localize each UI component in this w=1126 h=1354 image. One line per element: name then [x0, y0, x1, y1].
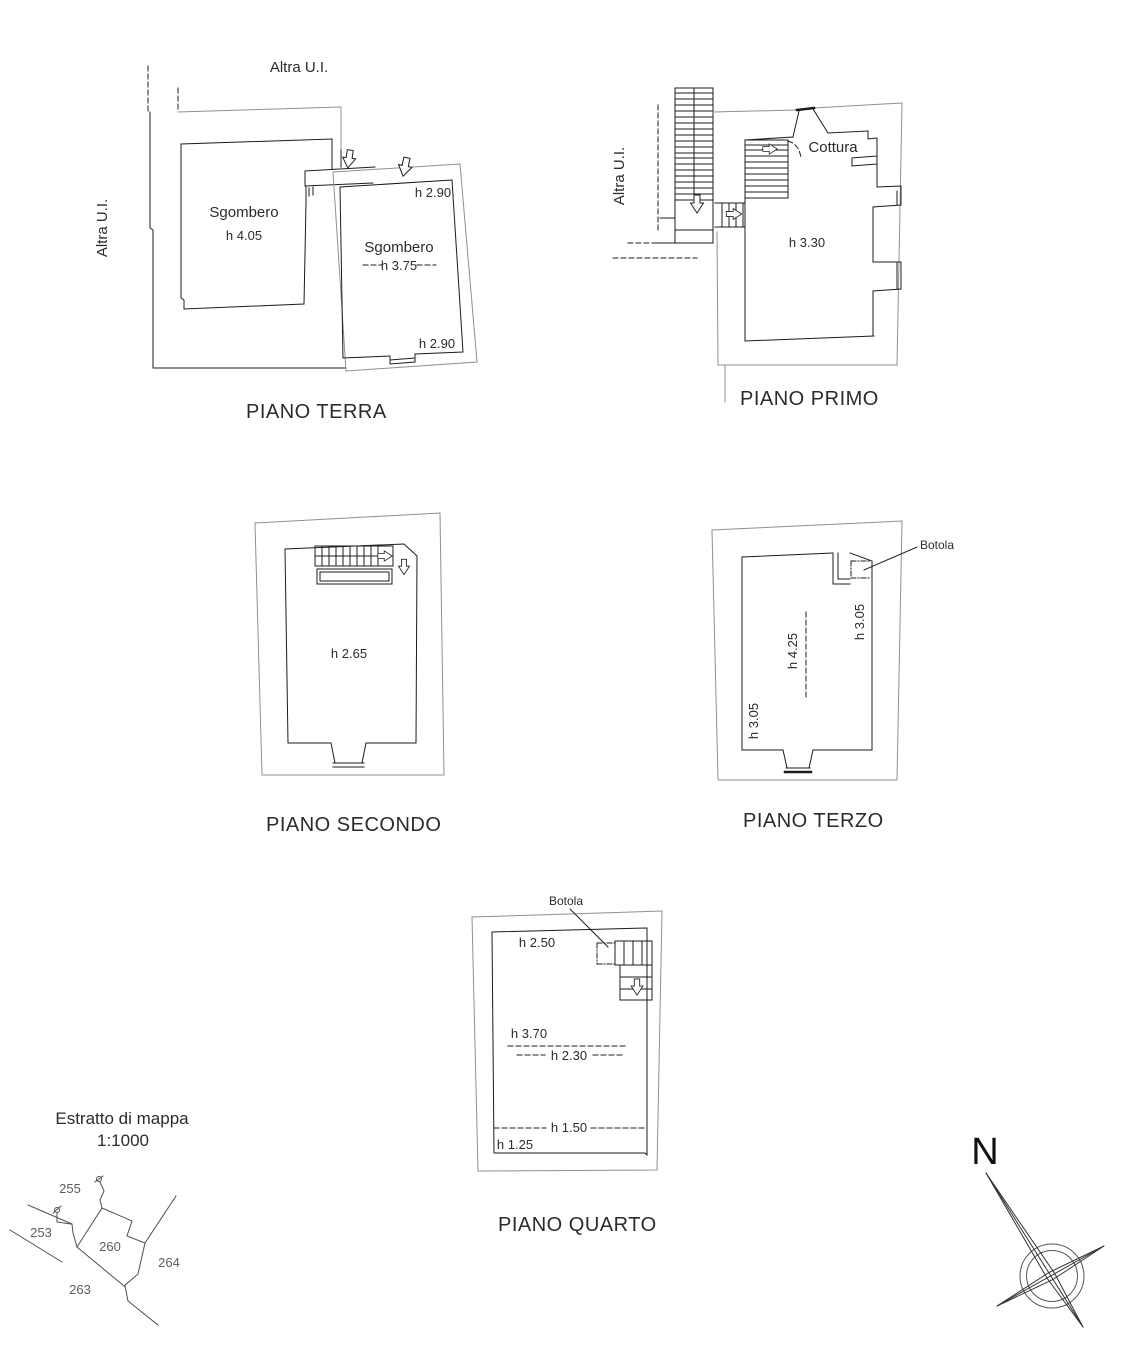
top-door: [797, 108, 814, 110]
parcel-number: 263: [69, 1282, 91, 1297]
caption-piano-quarto: PIANO QUARTO: [498, 1214, 657, 1236]
map-scale: 1:1000: [97, 1131, 149, 1150]
height-label: h 3.70: [511, 1026, 547, 1041]
plan-piano-quarto: Botola h 2.50 h 3.70 h 2.30 h 1.50 h 1.2…: [472, 894, 662, 1236]
stair-down-arrow-icon: [691, 195, 704, 213]
map-title: Estratto di mappa: [55, 1109, 189, 1128]
caption-piano-terzo: PIANO TERZO: [743, 810, 884, 832]
stair-down-arrow-icon: [631, 979, 643, 995]
height-label: h 3.30: [789, 235, 825, 250]
height-label: h 4.25: [785, 633, 800, 669]
stair-direction-arrow-icon: [378, 551, 392, 561]
caption-piano-primo: PIANO PRIMO: [740, 388, 879, 410]
plan-piano-secondo: h 2.65 PIANO SECONDO: [255, 513, 444, 836]
parcel-number: 264: [158, 1255, 180, 1270]
height-label: h 3.75: [381, 258, 417, 273]
boundary-dashed: [148, 66, 178, 112]
height-label: h 4.05: [226, 228, 262, 243]
parcel-number: 255: [59, 1181, 81, 1196]
room-label-cottura: Cottura: [808, 139, 858, 156]
label-altra-ui-top: Altra U.I.: [270, 59, 328, 76]
trapdoor-outline: [597, 943, 615, 964]
map-extract: Estratto di mappa 1:1000 255 253 260 264…: [10, 1109, 189, 1325]
boundary-connectors: [658, 218, 675, 243]
parcel-number: 260: [99, 1239, 121, 1254]
height-label: h 3.05: [746, 703, 761, 739]
entrance-arrow-icon: [341, 149, 356, 169]
door-threshold: [390, 354, 415, 364]
compass-outer-circle: [1020, 1244, 1084, 1308]
height-label: h 1.50: [551, 1120, 587, 1135]
trapdoor-leader-line: [570, 909, 608, 947]
trapdoor-outline: [851, 561, 871, 578]
inner-room-walls: [742, 553, 872, 750]
compass-rose: N: [971, 1131, 1104, 1327]
caption-piano-terra: PIANO TERRA: [246, 401, 387, 423]
stair: [615, 941, 652, 1000]
room-label: Sgombero: [364, 239, 433, 256]
north-label: N: [971, 1131, 998, 1173]
trapdoor-leader-line: [864, 547, 917, 570]
trapdoor-label: Botola: [920, 538, 954, 552]
plan-piano-terzo: Botola h 3.05 h 4.25 h 3.05 PIANO TERZO: [712, 521, 954, 832]
label-altra-ui: Altra U.I.: [611, 147, 628, 205]
room-left-walls: [181, 139, 332, 309]
floorplan-drawing: Altra U.I. Altra U.I. Sgombero h 4.05 h …: [0, 0, 1126, 1354]
height-label: h 2.90: [415, 185, 451, 200]
parcel-number: 253: [30, 1225, 52, 1240]
trapdoor-corner-wall: [833, 553, 850, 584]
height-label: h 2.50: [519, 935, 555, 950]
stair-down-arrow-icon: [398, 559, 409, 574]
height-label: h 2.30: [551, 1048, 587, 1063]
room-label: Sgombero: [209, 204, 278, 221]
bottom-notch: [783, 750, 813, 768]
survey-point-tail: [95, 1176, 104, 1208]
plan-piano-primo: Altra U.I. Cottura h 3.30 PIANO PRIMO: [611, 88, 902, 410]
height-label: h 2.65: [331, 646, 367, 661]
door-swing: [788, 141, 801, 158]
building-outer: [712, 521, 902, 780]
stair-landing: [317, 569, 392, 584]
compass-inner-circle: [1027, 1251, 1078, 1302]
trapdoor-label: Botola: [549, 894, 583, 908]
entrance-arrow-icon: [396, 156, 413, 177]
survey-point-tail: [53, 1206, 71, 1224]
label-altra-ui-left: Altra U.I.: [94, 199, 111, 257]
height-label: h 2.90: [419, 336, 455, 351]
height-label: h 1.25: [497, 1137, 533, 1152]
height-label: h 3.05: [852, 604, 867, 640]
cadastral-floorplan-sheet: Altra U.I. Altra U.I. Sgombero h 4.05 h …: [0, 0, 1126, 1354]
caption-piano-secondo: PIANO SECONDO: [266, 814, 441, 836]
plan-piano-terra: Altra U.I. Altra U.I. Sgombero h 4.05 h …: [94, 59, 477, 423]
